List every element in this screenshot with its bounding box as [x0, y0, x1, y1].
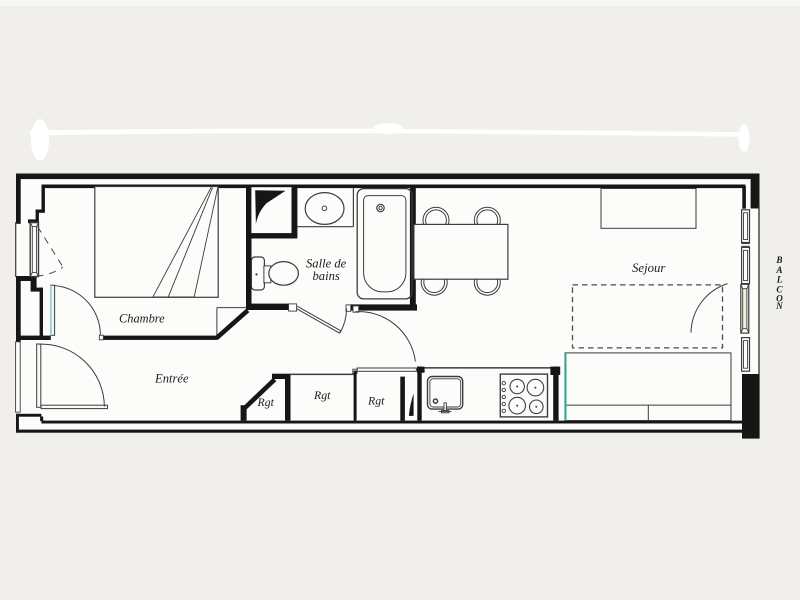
svg-text:A: A	[775, 265, 782, 275]
svg-text:Sejour: Sejour	[632, 261, 666, 275]
svg-text:Entrée: Entrée	[154, 372, 189, 386]
svg-text:Rgt: Rgt	[313, 388, 331, 402]
svg-text:Rgt: Rgt	[257, 395, 275, 409]
svg-text:B: B	[775, 255, 782, 265]
svg-text:Chambre: Chambre	[119, 311, 165, 325]
svg-text:Rgt: Rgt	[367, 394, 385, 408]
svg-text:N: N	[775, 301, 783, 311]
svg-text:L: L	[776, 275, 783, 285]
svg-text:bains: bains	[313, 269, 340, 283]
